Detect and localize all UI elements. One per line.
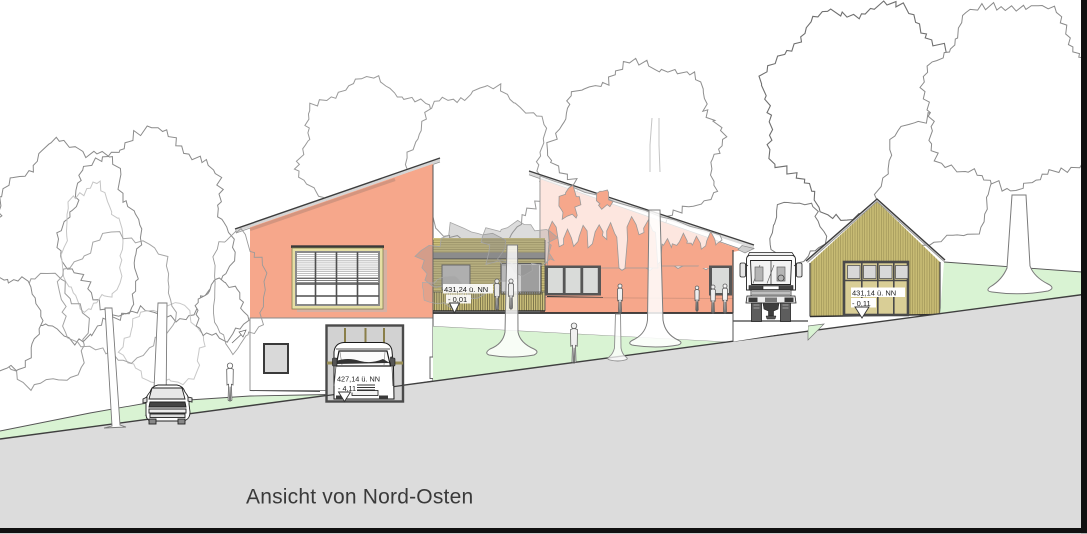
svg-text:427,14 ü. NN: 427,14 ü. NN	[337, 375, 380, 384]
svg-text:431,14 ü. NN: 431,14 ü. NN	[852, 289, 896, 298]
svg-text:Ansicht von Nord-Osten: Ansicht von Nord-Osten	[246, 486, 473, 509]
svg-text:431,24 ü. NN: 431,24 ü. NN	[444, 285, 488, 294]
